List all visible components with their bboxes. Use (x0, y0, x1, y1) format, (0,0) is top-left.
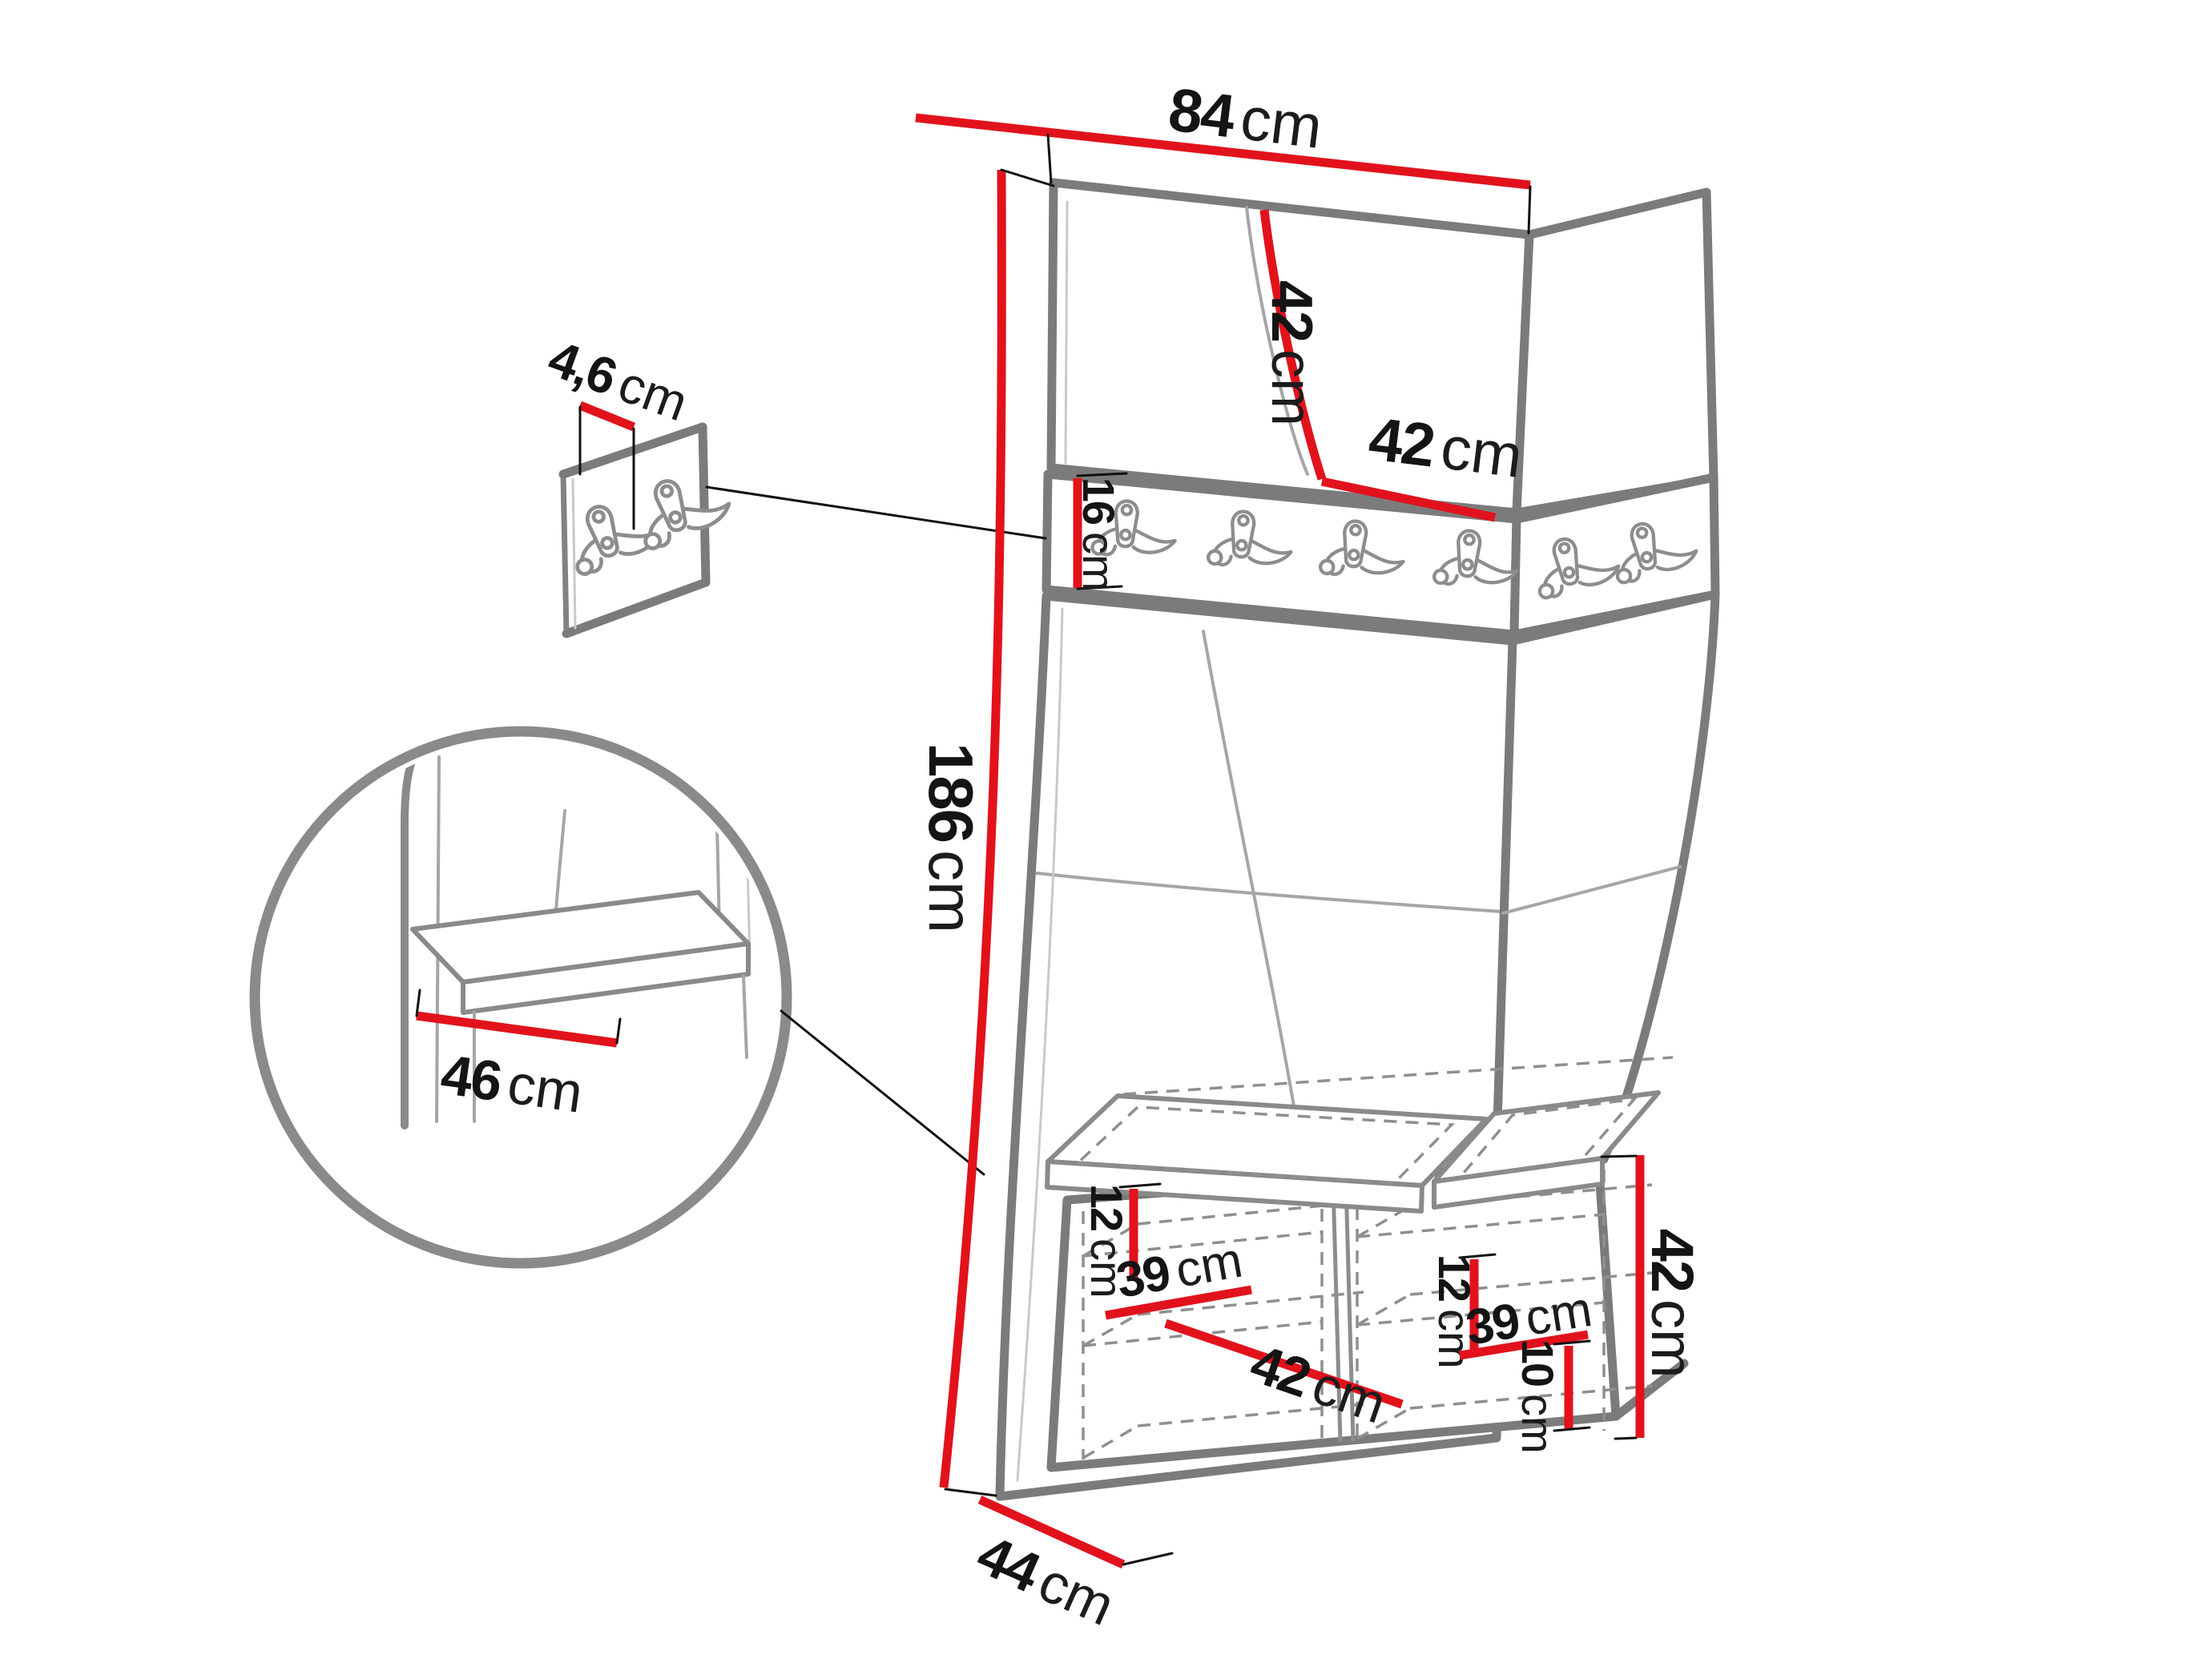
dimension-unit: cm (1437, 413, 1526, 491)
dimension-value: 42 (1365, 405, 1437, 480)
dimension-unit: cm (1029, 1550, 1123, 1637)
dimension-unit: cm (504, 1052, 586, 1124)
detail-leader-line (781, 1011, 984, 1174)
dimension-value: 42 (1639, 1229, 1706, 1291)
furniture-dimension-drawing: 84 cm 42 cm 42 cm 4,6 cm 16 cm (0, 0, 2212, 1659)
dimension-unit: cm (1521, 1282, 1595, 1347)
dimension-label-hook-rail-height: 16 cm (1074, 477, 1124, 592)
dimension-unit: cm (1513, 1394, 1563, 1454)
dimension-value: 16 (1074, 477, 1124, 525)
bench-corner-detail (255, 711, 984, 1263)
dimension-label-right-plinth-height: 10 cm (1513, 1339, 1563, 1454)
dimension-value: 12 (1082, 1184, 1132, 1230)
dimension-value: 42 (1259, 280, 1324, 341)
dimension-unit: cm (1171, 1232, 1246, 1298)
dimension-value: 10 (1513, 1339, 1563, 1386)
dimension-unit: cm (1074, 532, 1124, 592)
diagram-canvas: 84 cm 42 cm 42 cm 4,6 cm 16 cm (0, 0, 2212, 1659)
dimension-label-total-height: 186 cm (916, 743, 986, 933)
dimension-value: 84 (1165, 75, 1239, 151)
dimension-unit: cm (916, 850, 986, 933)
dimension-unit: cm (1237, 84, 1326, 162)
dimension-unit: cm (1259, 349, 1324, 426)
dimension-unit: cm (1639, 1299, 1706, 1379)
dimension-label-top-panel-height: 42 cm (1259, 280, 1324, 426)
dimension-value: 46 (437, 1043, 505, 1113)
dimension-value: 39 (1113, 1245, 1174, 1308)
dimension-value: 12 (1429, 1254, 1480, 1301)
dimension-label-bench-height: 42 cm (1639, 1229, 1706, 1379)
dimension-label-unit-depth: 44 cm (969, 1523, 1124, 1637)
dimension-value: 186 (916, 743, 986, 842)
detail-leader-line (707, 487, 1046, 538)
dimension-value: 4,6 (541, 329, 623, 406)
